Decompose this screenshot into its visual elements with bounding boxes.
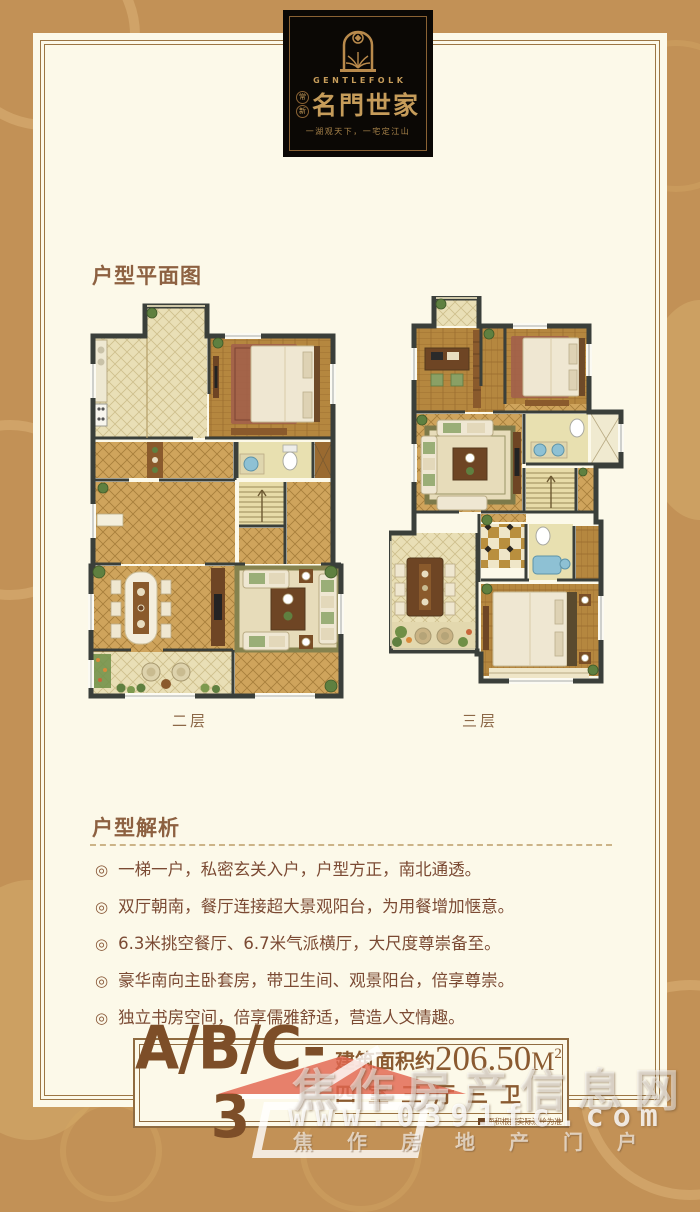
analysis-divider <box>90 844 612 846</box>
analysis-point: ◎双厅朝南，餐厅连接超大景观阳台，为用餐增加惬意。 <box>95 897 514 917</box>
analysis-point: ◎6.3米挑空餐厅、6.7米气派横厅，大尺度尊崇备至。 <box>95 934 514 954</box>
floorplan-level3 <box>389 296 641 700</box>
floorplan-section-title: 户型平面图 <box>92 260 202 290</box>
brand-seal-bottom: 新 <box>296 105 309 118</box>
bullet-icon: ◎ <box>95 1008 108 1028</box>
area-line: 建筑面积约206.50M2 <box>335 1039 562 1079</box>
floorplan-level2-label: 二层 <box>60 710 320 731</box>
floorplan-level3-label: 三层 <box>355 710 605 731</box>
area-number: 206.50 <box>435 1039 531 1078</box>
unit-code: A/B/C-3 <box>135 1014 325 1151</box>
area-label: 建筑面积约 <box>335 1049 435 1073</box>
brand-plaque-frame: GENTLEFOLK 常 新 名門世家 一湖观天下，一宅定江山 <box>289 16 427 151</box>
analysis-point-text: 豪华南向主卧套房，带卫生间、观景阳台，倍享尊崇。 <box>118 971 514 991</box>
analysis-point-text: 一梯一户，私密玄关入户，户型方正，南北通透。 <box>118 860 481 880</box>
disclaimer: 面积根据实际测绘为准 <box>335 1116 562 1127</box>
brand-plaque: GENTLEFOLK 常 新 名門世家 一湖观天下，一宅定江山 <box>283 10 433 157</box>
disclaimer-text: 面积根据实际测绘为准 <box>487 1116 562 1127</box>
area-unit-sup: 2 <box>554 1046 562 1062</box>
area-unit: M <box>531 1047 554 1076</box>
brand-seal-top: 常 <box>296 91 309 104</box>
brand-seal: 常 新 <box>296 91 309 118</box>
bullet-icon: ◎ <box>95 934 108 954</box>
room-layout: 四室三厅三卫 <box>335 1079 562 1114</box>
arch-gate-icon <box>337 25 379 73</box>
stamp-icon <box>478 1118 485 1125</box>
brand-name-en: GENTLEFOLK <box>310 76 407 85</box>
floorplan-level2 <box>85 298 345 710</box>
analysis-point: ◎豪华南向主卧套房，带卫生间、观景阳台，倍享尊崇。 <box>95 971 514 991</box>
brand-name-cn: 名門世家 <box>312 86 420 122</box>
bullet-icon: ◎ <box>95 897 108 917</box>
analysis-point-text: 双厅朝南，餐厅连接超大景观阳台，为用餐增加惬意。 <box>118 897 514 917</box>
brand-tagline: 一湖观天下，一宅定江山 <box>306 126 411 137</box>
watermark-site-slogan: 焦作房地产门户 <box>293 1126 671 1155</box>
analysis-section-title: 户型解析 <box>92 812 180 842</box>
analysis-point: ◎一梯一户，私密玄关入户，户型方正，南北通透。 <box>95 860 514 880</box>
unit-spec-box: A/B/C-3 建筑面积约206.50M2 四室三厅三卫 面积根据实际测绘为准 <box>133 1038 569 1128</box>
bullet-icon: ◎ <box>95 860 108 880</box>
bullet-icon: ◎ <box>95 971 108 991</box>
analysis-point-text: 6.3米挑空餐厅、6.7米气派横厅，大尺度尊崇备至。 <box>118 934 500 954</box>
